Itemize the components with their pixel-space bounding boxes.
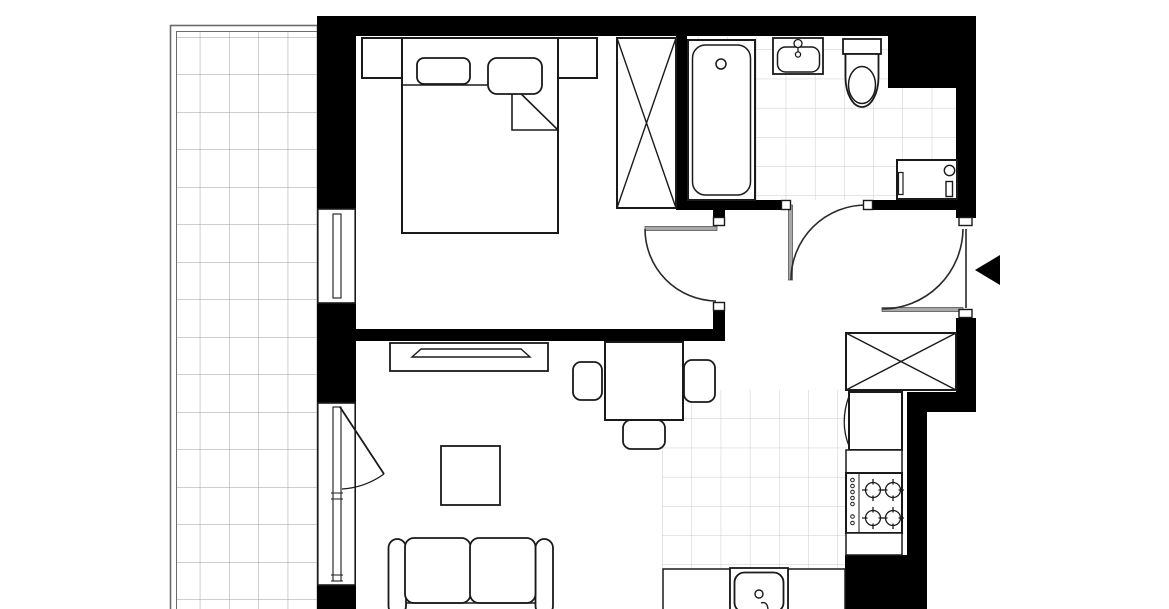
door-jambs bbox=[714, 201, 973, 318]
wall-top-right-block bbox=[888, 16, 976, 88]
door-jamb-mark bbox=[782, 201, 791, 210]
cooktop bbox=[846, 473, 904, 533]
sofa-cushion bbox=[405, 538, 471, 603]
balcony bbox=[171, 26, 318, 609]
bathtub bbox=[688, 40, 755, 200]
bedroom-window bbox=[318, 209, 355, 303]
wall-bedroom-living-divider bbox=[317, 329, 725, 341]
bathroom-door bbox=[789, 205, 867, 280]
kitchen-counter-bottom-right bbox=[788, 569, 845, 609]
dining-table bbox=[605, 342, 683, 420]
kitchen-counter-bottom-left bbox=[663, 569, 730, 609]
door-jamb-mark bbox=[959, 218, 972, 226]
window-double-line bbox=[333, 407, 341, 581]
kitchen-floor-tiles bbox=[662, 390, 846, 569]
toilet bbox=[843, 39, 881, 107]
pillow bbox=[417, 58, 470, 84]
washing-machine-knob bbox=[944, 165, 954, 175]
door-jamb-mark bbox=[714, 218, 725, 226]
chair-bottom bbox=[623, 420, 665, 449]
wall-kitchen-bottom-block bbox=[845, 555, 927, 609]
coffee-table bbox=[441, 446, 500, 505]
window-double-line bbox=[333, 214, 341, 298]
wall-kitchen-right-step bbox=[907, 392, 976, 412]
washing-machine-handle bbox=[899, 173, 904, 195]
kitchen-sink-drain bbox=[755, 590, 763, 598]
chair-left bbox=[573, 362, 602, 400]
door-swing-arc bbox=[791, 205, 866, 280]
chair-right bbox=[684, 360, 715, 402]
entrance-arrow-icon bbox=[975, 255, 1000, 285]
bedroom-wardrobe bbox=[617, 38, 676, 208]
hall-furniture bbox=[846, 333, 956, 390]
wall-left-upper bbox=[317, 16, 356, 209]
tv-lowboard bbox=[390, 343, 548, 371]
washing-machine bbox=[897, 160, 957, 199]
sofa bbox=[389, 538, 554, 609]
wall-right-upper bbox=[956, 88, 976, 218]
sofa-arm-left bbox=[389, 539, 407, 609]
door-swing-arc bbox=[645, 229, 716, 301]
washing-machine-panel bbox=[946, 182, 953, 197]
door-jamb-mark bbox=[714, 303, 725, 311]
balcony-grid bbox=[177, 32, 317, 609]
sofa-seat-line bbox=[406, 603, 535, 609]
toilet-tank bbox=[843, 39, 881, 54]
kitchen-sink bbox=[730, 568, 788, 609]
kitchen-counter bbox=[846, 450, 902, 473]
entrance-door bbox=[882, 229, 966, 312]
doors bbox=[645, 201, 972, 318]
kitchen-counter bbox=[846, 533, 902, 555]
wall-left-lower bbox=[317, 585, 356, 609]
wall-top bbox=[317, 16, 976, 36]
wall-bathroom-bottom-left bbox=[676, 200, 782, 210]
bedroom-furniture bbox=[362, 38, 676, 233]
floor-plan bbox=[0, 0, 1169, 609]
fridge bbox=[844, 392, 902, 450]
washbasin bbox=[773, 38, 823, 74]
door-jamb-mark bbox=[959, 310, 972, 318]
wall-left-middle bbox=[317, 303, 356, 403]
floor-plan-page bbox=[0, 0, 1169, 609]
toilet-bowl-inner bbox=[849, 67, 876, 104]
hall-closet bbox=[846, 333, 956, 390]
door-jamb-mark bbox=[864, 201, 873, 210]
door-swing-arc bbox=[882, 229, 963, 309]
sofa-cushion bbox=[470, 538, 536, 603]
pillow bbox=[488, 58, 542, 94]
sofa-arm-right bbox=[536, 539, 554, 609]
nightstand-left bbox=[362, 38, 402, 78]
bedroom-door bbox=[645, 227, 717, 302]
nightstand-right bbox=[558, 38, 597, 78]
wall-bedroom-bathroom-divider bbox=[676, 36, 687, 210]
bathtub-drain bbox=[716, 59, 726, 69]
balcony-door-window bbox=[318, 403, 384, 585]
tv-icon bbox=[412, 349, 530, 357]
door-leaf bbox=[645, 227, 717, 231]
